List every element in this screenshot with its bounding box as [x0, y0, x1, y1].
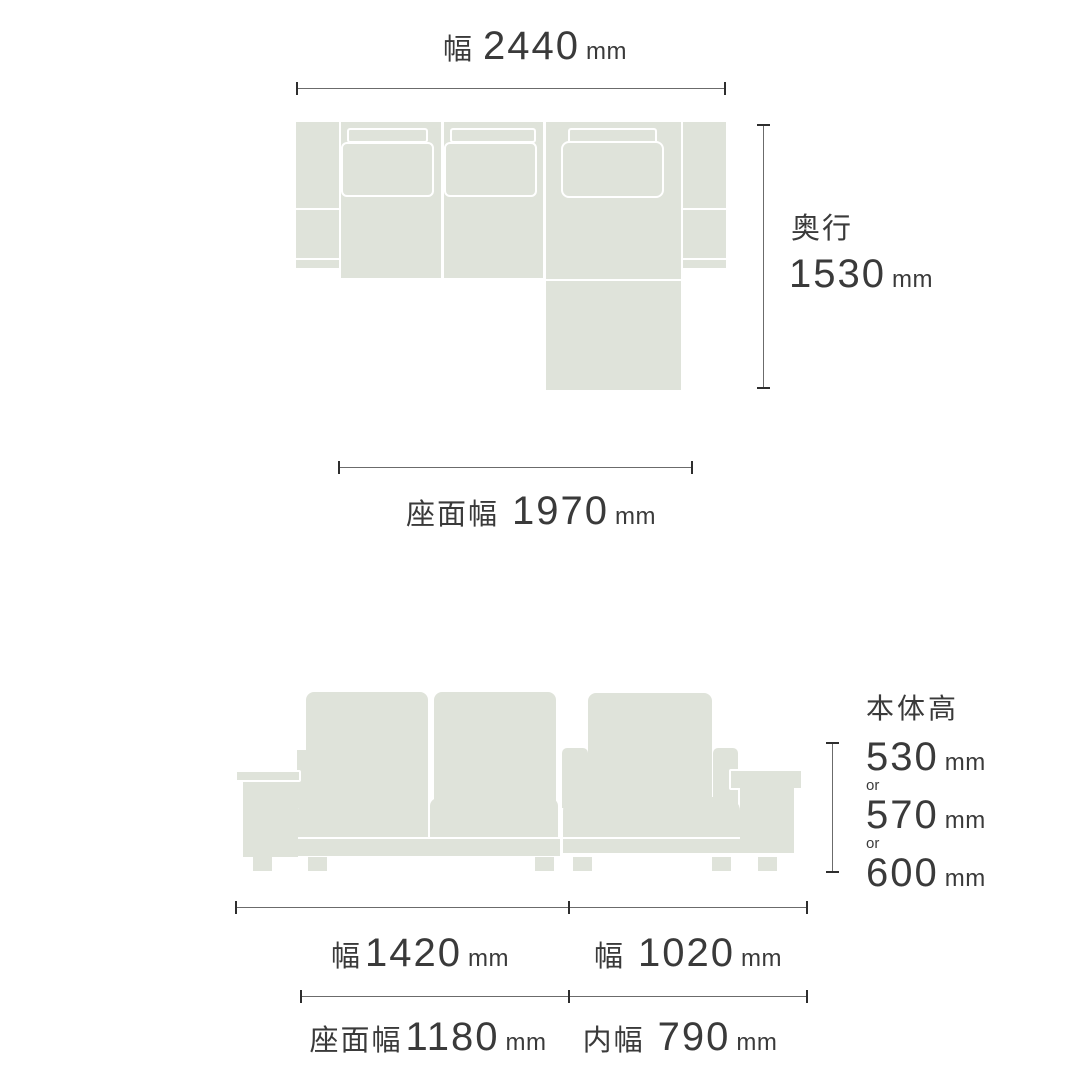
front-view-back-cushion-right [588, 693, 712, 805]
front-right-width-value: 1020 [638, 931, 735, 976]
front-seat-width-unit: mm [506, 1029, 547, 1057]
body-height-value-3: 600 [866, 851, 939, 895]
body-height-unit-3: mm [945, 857, 986, 901]
body-height-title: 本体高 [866, 694, 986, 724]
dim-tick [806, 990, 808, 1003]
front-left-width-prefix: 幅 [331, 933, 362, 975]
dim-tick [806, 901, 808, 914]
front-inner-width-prefix: 内幅 [583, 1017, 645, 1059]
front-seat-width-value: 1180 [406, 1015, 500, 1060]
front-view-left-armrest-top [235, 770, 301, 782]
sofa-foot [712, 857, 731, 871]
front-view-base-right [563, 839, 740, 853]
body-height-value-2: 570 [866, 793, 939, 837]
sofa-foot [573, 857, 592, 871]
front-left-width-unit: mm [468, 945, 509, 973]
body-height-value-1: 530 [866, 735, 939, 779]
sofa-foot [253, 857, 272, 871]
front-seat-width-label: 座面幅 1180 mm [309, 1015, 546, 1060]
body-height-option-1: 530 mm [866, 735, 986, 779]
front-view-section: 本体高 530 mm or 570 mm or 600 mm 幅 1420 [0, 0, 1080, 1080]
front-view-back-cushion-left [306, 692, 428, 812]
front-width-dimension-line [235, 901, 808, 914]
front-view-right-armrest [740, 779, 794, 853]
front-view-seat-cushion-left [298, 798, 428, 837]
sofa-dimension-diagram: 幅 2440 mm 奥行 [0, 0, 1080, 1080]
front-seat-width-prefix: 座面幅 [309, 1017, 402, 1059]
dim-tick [826, 742, 839, 744]
body-height-unit-2: mm [945, 799, 986, 843]
body-height-option-2: 570 mm [866, 793, 986, 837]
dim-tick [568, 901, 570, 914]
front-left-width-label: 幅 1420 mm [331, 931, 509, 976]
front-inner-width-value: 790 [658, 1015, 731, 1060]
front-view-back-cushion-middle [434, 692, 556, 812]
front-view-seat-cushion-middle [430, 798, 558, 837]
sofa-foot [535, 857, 554, 871]
front-right-width-unit: mm [741, 945, 782, 973]
dim-tick [826, 871, 839, 873]
front-inner-width-label: 内幅 790 mm [583, 1015, 778, 1060]
front-inner-width-unit: mm [736, 1029, 777, 1057]
body-height-unit-1: mm [945, 741, 986, 785]
sofa-foot [308, 857, 327, 871]
front-view-left-armrest [243, 782, 298, 857]
body-height-option-3: 600 mm [866, 851, 986, 895]
front-right-width-label: 幅 1020 mm [594, 931, 782, 976]
front-view-seat-cushion-right [563, 797, 740, 837]
dim-tick [568, 990, 570, 1003]
front-left-width-value: 1420 [365, 931, 462, 976]
front-right-width-prefix: 幅 [594, 933, 625, 975]
front-seat-width-dimension-line [300, 990, 808, 1003]
body-height-label-block: 本体高 530 mm or 570 mm or 600 mm [866, 694, 986, 895]
dim-tick [235, 901, 237, 914]
body-height-dimension-line [826, 742, 839, 873]
front-view-base-left [298, 839, 560, 856]
dim-tick [300, 990, 302, 1003]
sofa-foot [758, 857, 777, 871]
